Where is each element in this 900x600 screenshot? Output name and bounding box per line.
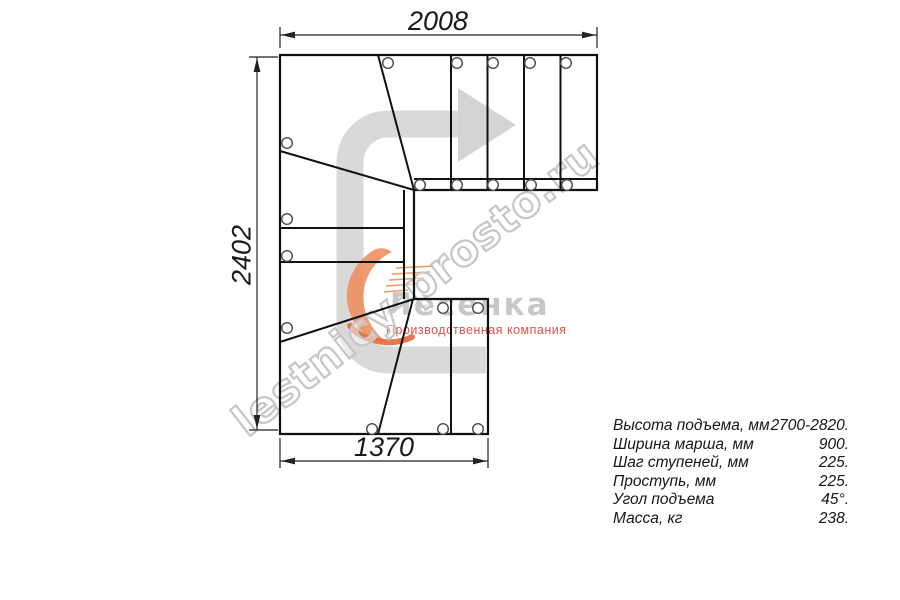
spec-row-tread: Проступь, мм 225. (613, 473, 849, 492)
spec-table: Высота подъема, мм 2700-2820. Ширина мар… (613, 417, 849, 529)
spec-label: Проступь, мм (613, 473, 716, 492)
spec-value: 45°. (821, 491, 849, 510)
spec-row-step-pitch: Шаг ступеней, мм 225. (613, 454, 849, 473)
stair-outline (280, 55, 597, 434)
spec-value: 900. (819, 436, 849, 455)
bolt-hole-circles (282, 58, 573, 435)
spec-row-height: Высота подъема, мм 2700-2820. (613, 417, 849, 436)
spec-label: Угол подъема (613, 491, 714, 510)
dimension-label-bottom-width: 1370 (354, 434, 414, 461)
spec-value: 238. (819, 510, 849, 529)
spec-label: Ширина марша, мм (613, 436, 754, 455)
staircase-drawing-page: Лесенка Производственная компания lestni… (0, 0, 900, 600)
spec-value: 225. (819, 473, 849, 492)
spec-row-mass: Масса, кг 238. (613, 510, 849, 529)
stair-step-lines (280, 55, 597, 434)
spec-label: Шаг ступеней, мм (613, 454, 749, 473)
dimension-label-left-height: 2402 (229, 225, 256, 285)
spec-label: Масса, кг (613, 510, 682, 529)
dimension-label-top-width: 2008 (408, 8, 468, 35)
spec-value: 2700-2820. (771, 417, 849, 436)
spec-value: 225. (819, 454, 849, 473)
spec-row-flight-width: Ширина марша, мм 900. (613, 436, 849, 455)
spec-label: Высота подъема, мм (613, 417, 770, 436)
dimension-lines (249, 27, 597, 468)
dimension-arrowheads (254, 32, 596, 465)
spec-row-angle: Угол подъема 45°. (613, 491, 849, 510)
